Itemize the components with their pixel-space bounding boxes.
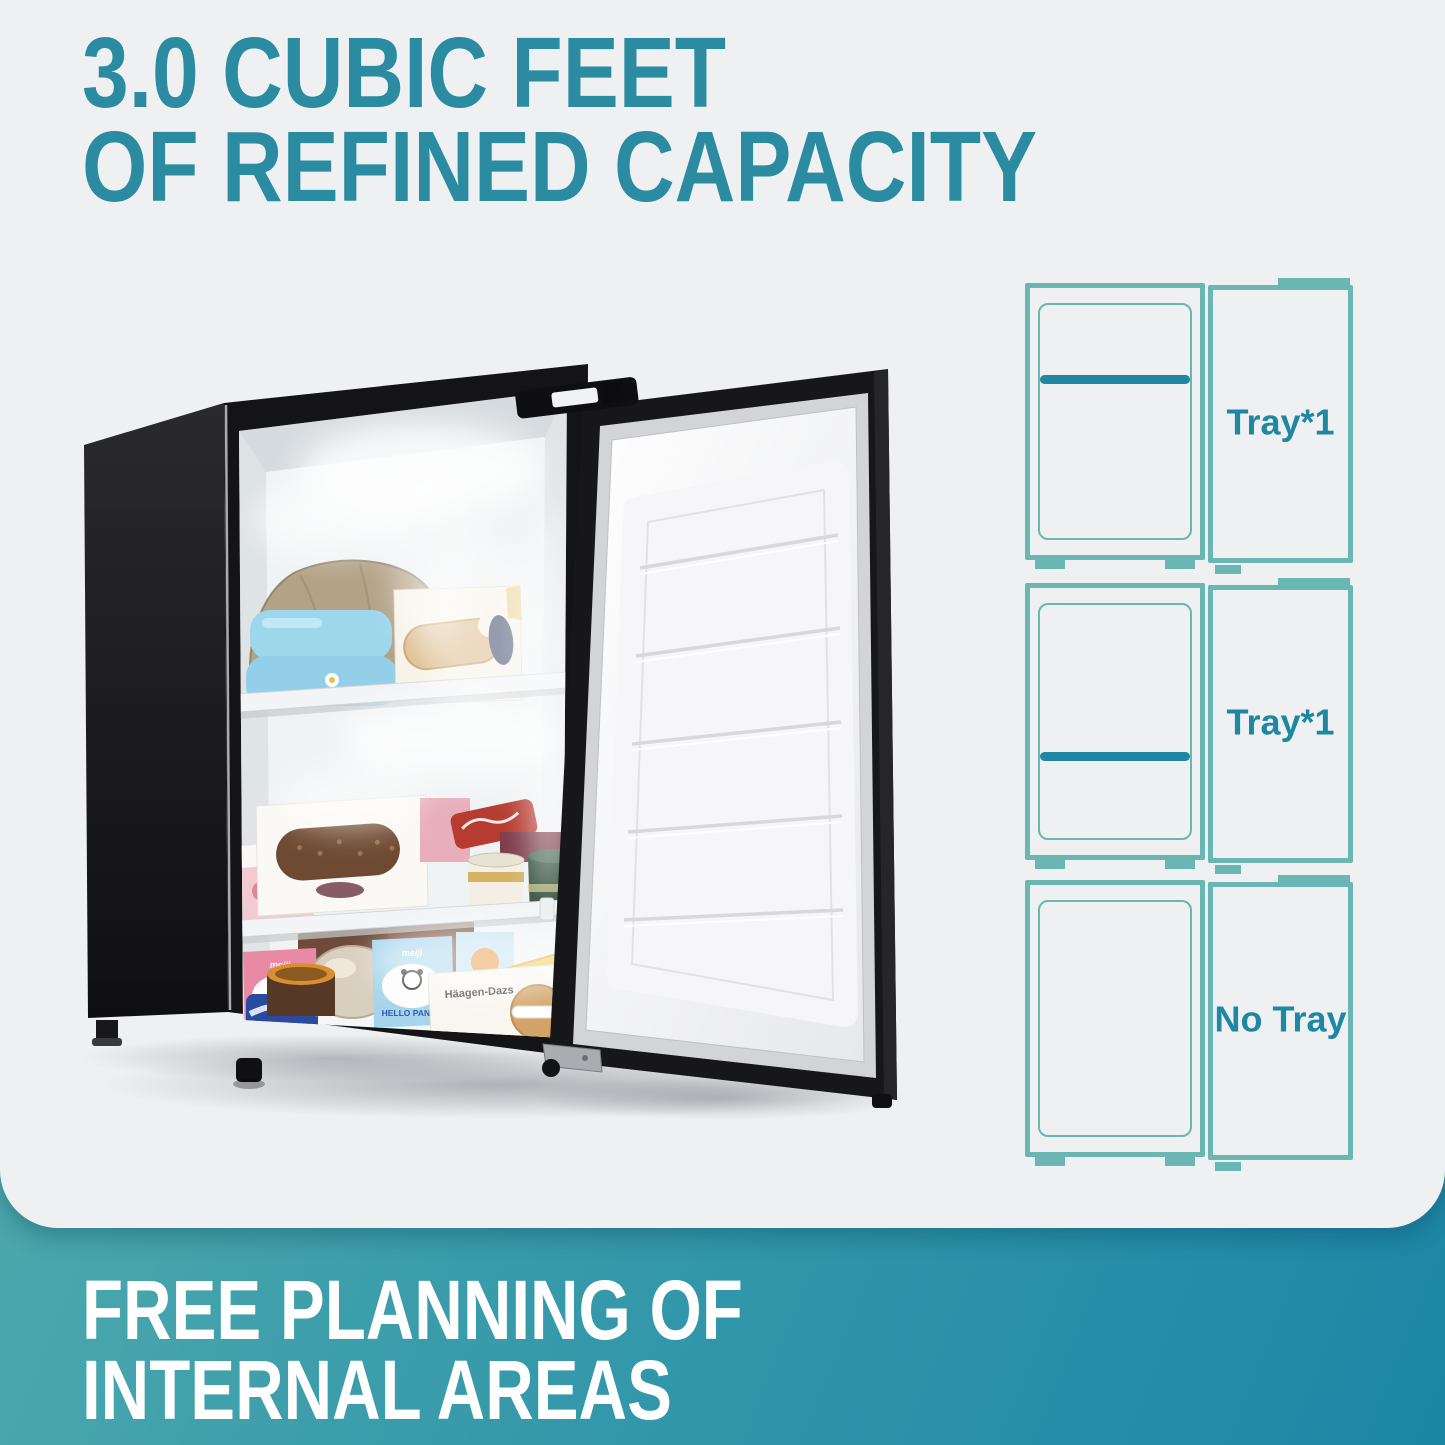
freezer-photo: meiji HELLO PANDA meiji HELLO PANDA — [60, 340, 920, 1130]
diagram-foot — [1215, 865, 1241, 874]
leveling-foot — [236, 1058, 262, 1082]
diagram-foot — [1165, 560, 1195, 569]
diagram-label: Tray*1 — [1213, 401, 1348, 443]
diagram-label: No Tray — [1213, 998, 1348, 1040]
diagram-tray-bar — [1040, 375, 1190, 384]
diagram-cabinet-outline — [1025, 283, 1205, 560]
diagram-hinge-tab — [1278, 578, 1350, 585]
diagram-label: Tray*1 — [1213, 701, 1348, 743]
diagram-hinge-tab — [1278, 278, 1350, 285]
diagram-foot — [1035, 1157, 1065, 1166]
cabinet-side-panel — [84, 403, 228, 1018]
footer-line1: FREE PLANNING OF — [82, 1270, 743, 1350]
diagram-cabinet-outline — [1025, 880, 1205, 1157]
diagram-tray-bar — [1040, 752, 1190, 761]
footer-line2: INTERNAL AREAS — [82, 1350, 743, 1430]
blue-ice-pop-bag — [250, 610, 392, 660]
diagram-foot — [1035, 860, 1065, 869]
headline-line1: 3.0 CUBIC FEET — [82, 26, 1037, 120]
freezer-door-open — [549, 369, 897, 1100]
diagram-foot — [1035, 560, 1065, 569]
diagram-foot — [1165, 860, 1195, 869]
diagram-foot — [1215, 565, 1241, 574]
door-inner-panel — [620, 474, 845, 1014]
headline-line2: OF REFINED CAPACITY — [82, 120, 1037, 214]
diagram-door-outline: Tray*1 — [1208, 285, 1353, 563]
diagram-hinge-tab — [1278, 875, 1350, 882]
footer-text: FREE PLANNING OF INTERNAL AREAS — [82, 1270, 743, 1430]
headline: 3.0 CUBIC FEET OF REFINED CAPACITY — [82, 26, 1037, 214]
door-corner-foot — [872, 1094, 892, 1108]
freezer-layout-diagram-2: Tray*1 — [1025, 583, 1353, 873]
freezer-layout-diagram-3: No Tray — [1025, 880, 1353, 1170]
diagram-door-outline: Tray*1 — [1208, 585, 1353, 863]
diagram-foot — [1215, 1162, 1241, 1171]
diagram-door-outline: No Tray — [1208, 882, 1353, 1160]
diagram-interior-outline — [1038, 303, 1192, 540]
diagram-interior-outline — [1038, 603, 1192, 840]
diagram-interior-outline — [1038, 900, 1192, 1137]
freezer-layout-diagram-1: Tray*1 — [1025, 283, 1353, 573]
marketing-image: 3.0 CUBIC FEET OF REFINED CAPACITY — [0, 0, 1445, 1445]
diagram-cabinet-outline — [1025, 583, 1205, 860]
diagram-foot — [1165, 1157, 1195, 1166]
